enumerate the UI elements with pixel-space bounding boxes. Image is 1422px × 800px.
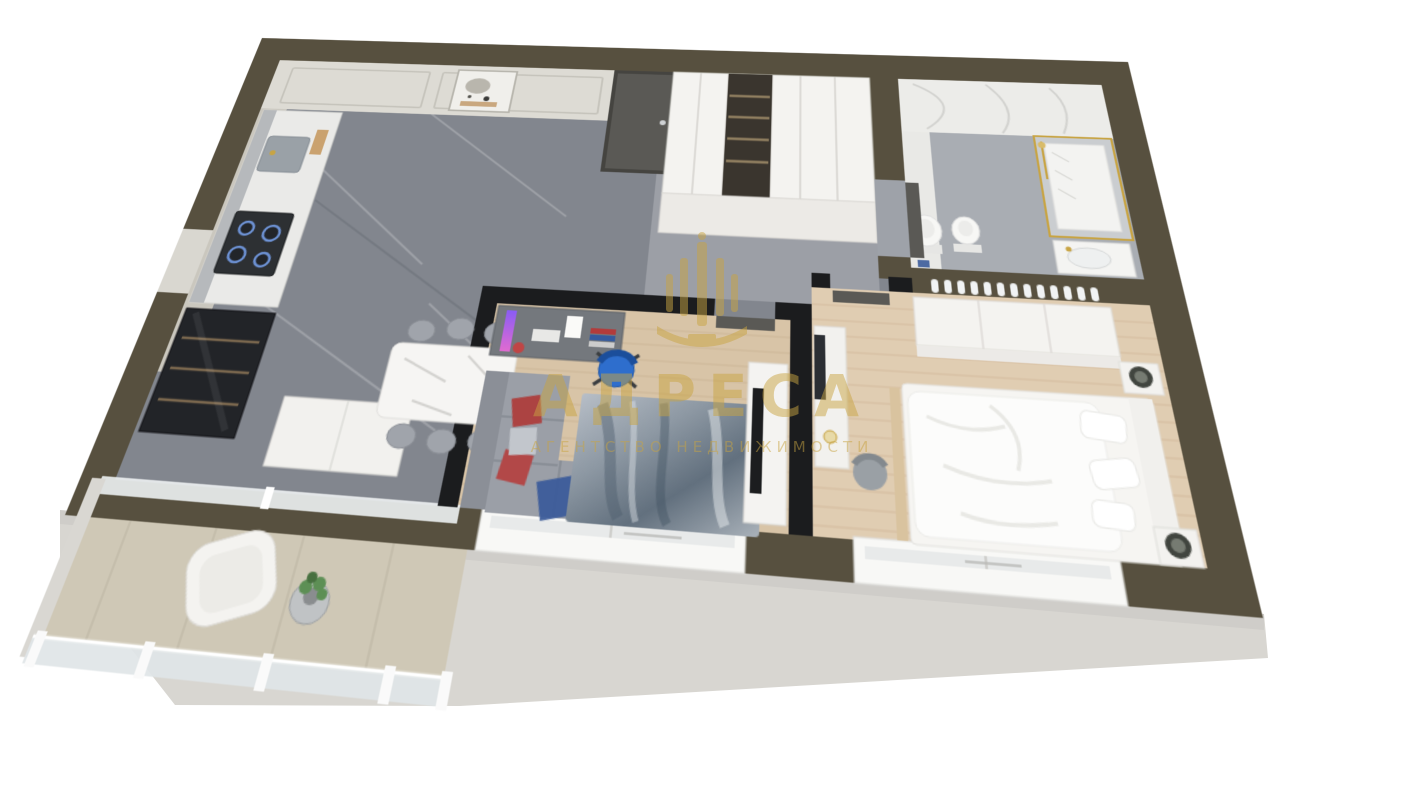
books-stack (588, 328, 616, 348)
tv-console (743, 362, 787, 526)
vanity-lamp (824, 430, 837, 443)
bath-mat (918, 260, 930, 268)
bedroom-top-wall-stub (812, 273, 831, 288)
floor-plan-render: АДРЕСА АГЕНТСТВО НЕДВИЖИМОСТИ (0, 0, 1422, 800)
red-pillow (512, 395, 542, 427)
bathroom-door-opening (874, 179, 910, 257)
dresser (913, 297, 1123, 369)
hallway-wardrobe (658, 72, 877, 243)
double-bed (902, 383, 1187, 566)
bathroom-sink (1053, 240, 1136, 277)
office-top-wall-stub (775, 302, 791, 320)
office-bedroom-wall (789, 303, 813, 536)
paper (564, 316, 583, 338)
gray-pillow (508, 427, 537, 455)
area-rug (565, 393, 762, 537)
mirror (814, 335, 826, 400)
bedroom-top-wall-stub (888, 277, 913, 293)
keyboard (531, 329, 560, 343)
wardrobe-open-section (722, 74, 773, 198)
framed-picture (449, 70, 518, 112)
